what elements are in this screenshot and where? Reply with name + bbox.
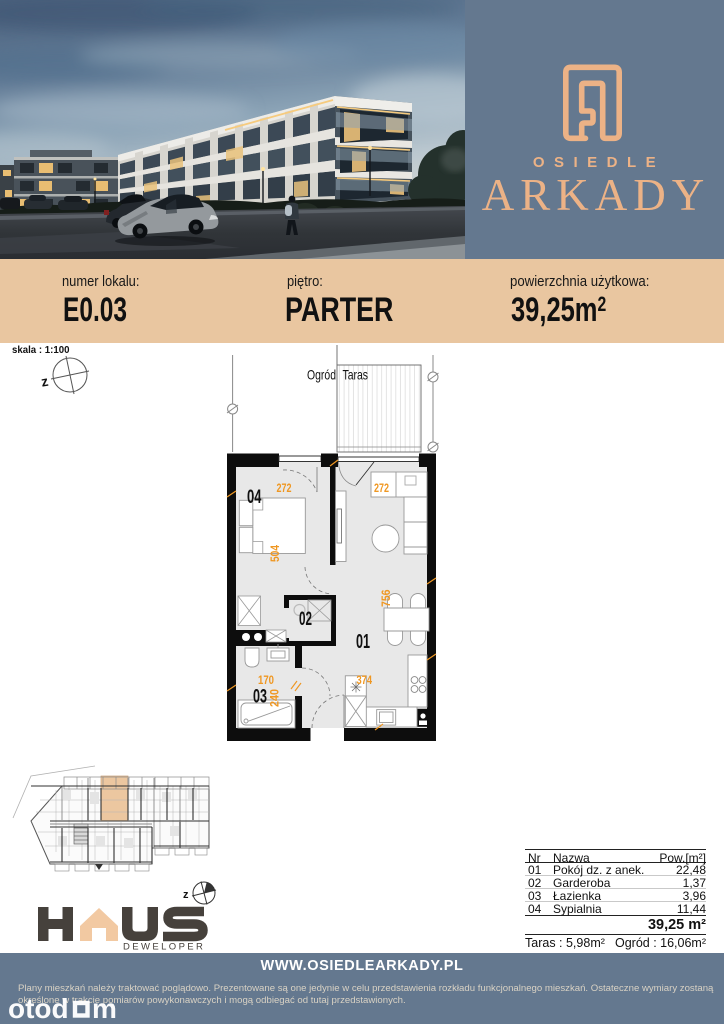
- svg-text:Taras: Taras: [343, 367, 369, 383]
- svg-text:z: z: [40, 373, 50, 390]
- svg-text:272: 272: [277, 481, 292, 495]
- svg-text:OSIEDLE: OSIEDLE: [533, 154, 665, 171]
- svg-text:ARKADY: ARKADY: [482, 170, 711, 220]
- svg-text:504: 504: [268, 545, 282, 562]
- svg-text:Ogród: Ogród: [307, 367, 336, 383]
- svg-text:170: 170: [258, 673, 274, 687]
- svg-text:02: 02: [299, 609, 312, 630]
- svg-text:z: z: [183, 889, 189, 901]
- svg-text:272: 272: [374, 481, 389, 495]
- svg-text:374: 374: [357, 673, 373, 687]
- svg-text:756: 756: [379, 589, 393, 607]
- svg-text:otod: otod: [8, 996, 69, 1022]
- svg-text:01: 01: [356, 631, 370, 653]
- svg-text:DEWELOPER: DEWELOPER: [123, 942, 205, 953]
- svg-text:240: 240: [268, 689, 282, 707]
- svg-text:m: m: [92, 996, 117, 1022]
- svg-text:04: 04: [247, 487, 262, 508]
- svg-text:03: 03: [253, 687, 267, 708]
